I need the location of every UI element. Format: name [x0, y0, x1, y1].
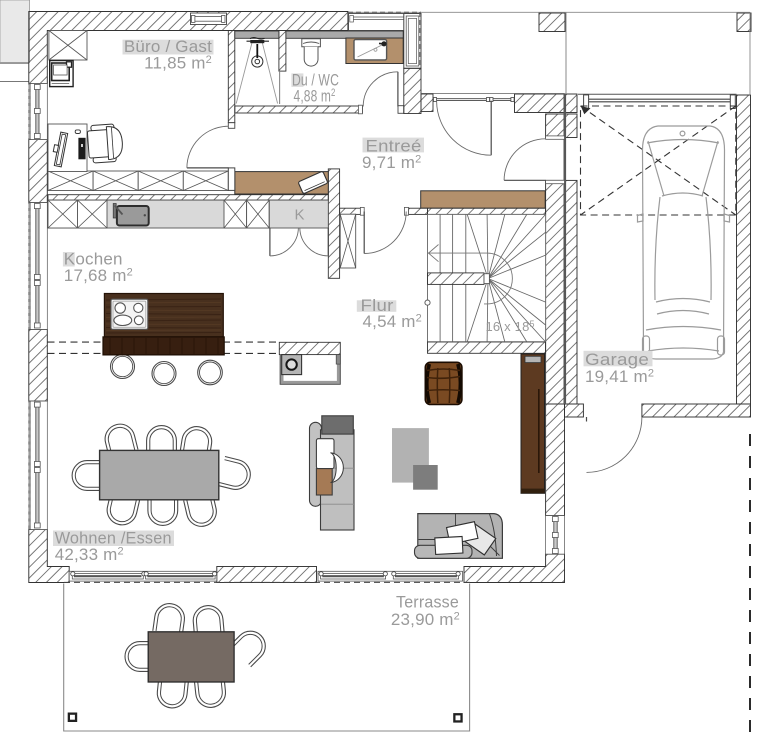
- svg-text:23,90 m2: 23,90 m2: [391, 610, 460, 629]
- svg-text:9,71 m2: 9,71 m2: [362, 153, 422, 172]
- svg-text:K: K: [295, 207, 305, 224]
- svg-text:42,33 m2: 42,33 m2: [55, 545, 124, 564]
- svg-text:17,68 m2: 17,68 m2: [64, 266, 133, 285]
- svg-text:Terrasse: Terrasse: [396, 593, 459, 612]
- svg-text:4,88 m2: 4,88 m2: [294, 87, 336, 106]
- svg-text:11,85 m2: 11,85 m2: [144, 54, 212, 73]
- svg-text:19,41 m2: 19,41 m2: [585, 367, 654, 386]
- svg-text:16 x 185: 16 x 185: [486, 319, 535, 334]
- svg-text:4,54 m2: 4,54 m2: [363, 312, 423, 331]
